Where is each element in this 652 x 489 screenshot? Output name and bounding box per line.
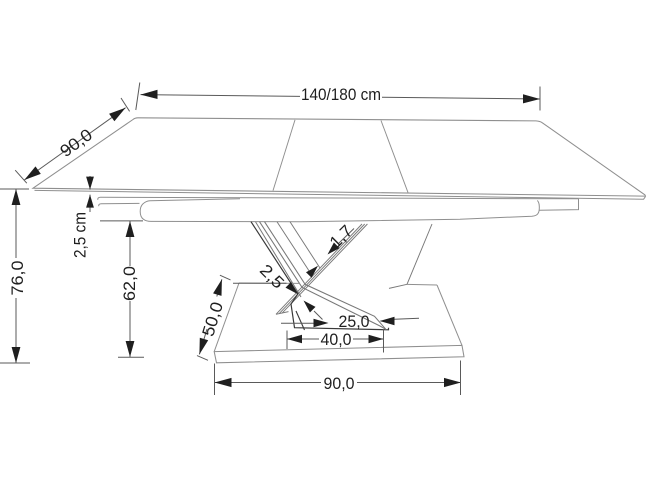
- svg-text:25,0: 25,0: [339, 312, 370, 331]
- svg-text:90,0: 90,0: [324, 374, 355, 393]
- svg-text:62,0: 62,0: [120, 266, 139, 301]
- svg-text:40,0: 40,0: [321, 330, 352, 349]
- svg-text:76,0: 76,0: [8, 261, 27, 296]
- svg-text:140/180 cm: 140/180 cm: [301, 85, 381, 104]
- svg-text:2,5 cm: 2,5 cm: [70, 212, 89, 258]
